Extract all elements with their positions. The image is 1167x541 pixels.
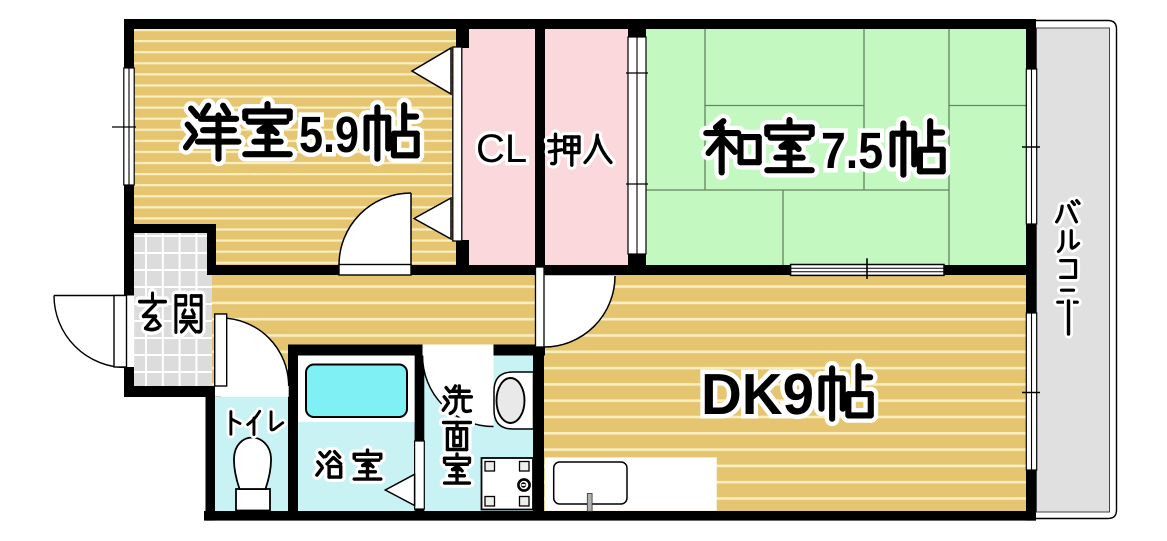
svg-text:5.9: 5.9 xyxy=(299,106,359,163)
svg-text:DK9: DK9 xyxy=(701,362,814,427)
svg-text:7.5: 7.5 xyxy=(821,122,883,179)
svg-text:CL: CL xyxy=(476,127,527,171)
